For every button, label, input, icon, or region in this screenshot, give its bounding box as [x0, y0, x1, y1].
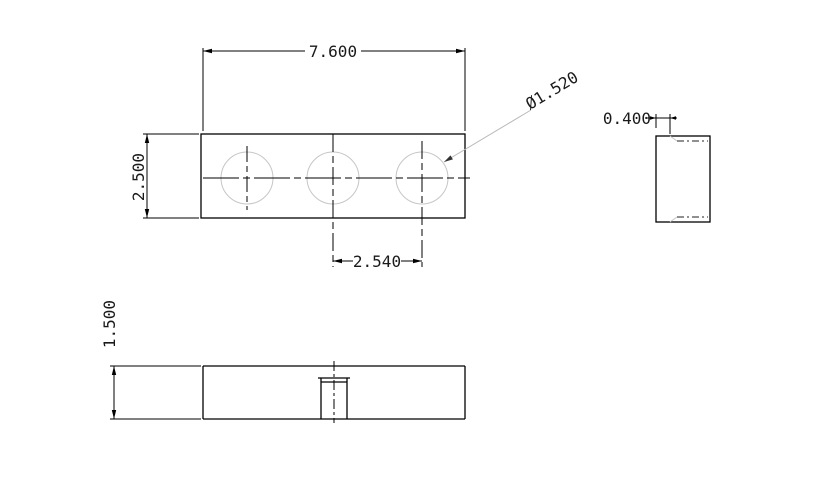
leader-line [444, 110, 531, 162]
dim-label-hole-diameter: Ø1.520 [522, 67, 581, 113]
arrowhead-icon [112, 410, 116, 419]
side-view-outline [656, 136, 710, 222]
dim-label-front-thickness: 1.500 [100, 300, 119, 348]
dim-label-hole-spacing: 2.540 [353, 252, 401, 271]
arrowhead-icon [145, 134, 149, 143]
arrowhead-icon [112, 366, 116, 375]
top-view [201, 134, 470, 267]
drawing-canvas: 7.600 2.500 2.540 Ø1.520 [0, 0, 833, 485]
front-view [203, 361, 465, 423]
arrowhead-icon [333, 259, 342, 263]
dim-side-offset: 0.400 [603, 109, 677, 134]
dim-front-thickness: 1.500 [100, 300, 201, 419]
dim-label-top-width: 7.600 [309, 42, 357, 61]
chamfer-line-top [670, 136, 677, 141]
side-view [656, 136, 710, 222]
chamfer-line-bottom [670, 217, 677, 222]
dim-label-side-offset: 0.400 [603, 109, 651, 128]
arrowhead-icon [456, 49, 465, 53]
dim-top-width: 7.600 [203, 42, 465, 131]
engineering-drawing: 7.600 2.500 2.540 Ø1.520 [0, 0, 833, 485]
dim-hole-spacing: 2.540 [333, 252, 422, 271]
dim-label-plate-height: 2.500 [129, 153, 148, 201]
leader-arrowhead-icon [444, 155, 453, 162]
dim-plate-height: 2.500 [129, 134, 199, 218]
arrowhead-icon [145, 209, 149, 218]
arrowhead-icon [203, 49, 212, 53]
arrowhead-icon [413, 259, 422, 263]
